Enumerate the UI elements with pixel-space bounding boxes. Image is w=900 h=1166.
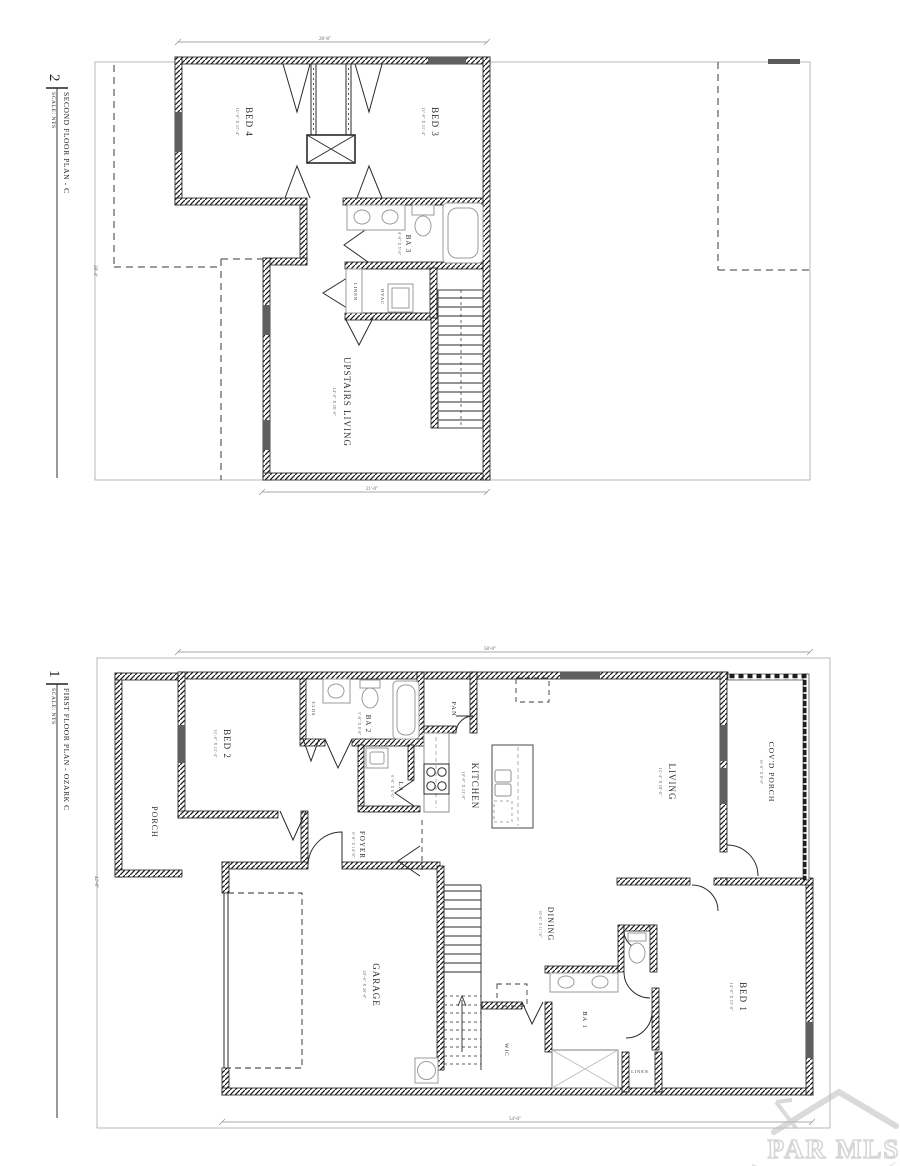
room-size-bed1: 14'-0" X 13'-0" xyxy=(729,983,734,1012)
room-label-clos: CLOS xyxy=(311,702,316,717)
plan2-scale: SCALE: NTS xyxy=(50,92,56,129)
room-label-upstairs-living: UPSTAIRS LIVING xyxy=(342,357,352,447)
plan2-closet-chase xyxy=(307,64,355,163)
room-label-la: LA xyxy=(397,782,404,793)
plan1-dim-bottom: 54'-0" xyxy=(509,1117,521,1122)
room-size-la: 6'-0" X 6'-0" xyxy=(390,775,394,798)
hvac-unit-inner xyxy=(392,288,409,308)
room-size-upstairs-living: 14'-0" X 16'-0" xyxy=(332,388,337,417)
room-label-linen2: LINEN xyxy=(353,283,358,302)
room-size-kitchen: 10'-0" X 11'-0" xyxy=(461,772,466,801)
room-label-wic: WIC xyxy=(503,1043,509,1057)
room-size-ba3: 8'-0" X 5'-0" xyxy=(397,232,401,255)
plan1-dim-top: 58'-0" xyxy=(484,647,496,652)
plan2-ba3-fixtures xyxy=(346,203,483,313)
ba3-toilet-icon xyxy=(415,216,431,236)
front-door xyxy=(308,832,342,866)
plan1-first-floor: 1 FIRST FLOOR PLAN - OZARK C SCALE: NTS … xyxy=(46,647,830,1128)
ba1-fixtures xyxy=(415,933,646,1088)
room-label-ba2: BA 2 xyxy=(364,715,372,734)
ba2-toilet-icon xyxy=(362,688,378,708)
ba1-sink-right-icon xyxy=(592,976,608,988)
plan1-stairs xyxy=(444,885,481,1070)
room-label-ba3: BA 3 xyxy=(404,235,412,254)
ba2-sink-icon xyxy=(328,684,344,698)
room-label-bed2: BED 2 xyxy=(222,729,232,759)
room-label-bed1: BED 1 xyxy=(738,982,748,1012)
plan2-number: 2 xyxy=(46,74,62,82)
room-size-living: 15'-4" X 18'-0" xyxy=(658,768,663,797)
room-label-dining: DINING xyxy=(546,907,555,941)
room-size-bed2: 11'-0" X 11'-4" xyxy=(213,730,218,759)
plan2-title-block: 2 SECOND FLOOR PLAN - C SCALE: NTS xyxy=(46,74,71,478)
plan2-dim-bottom: 21'-0" xyxy=(366,487,378,492)
ba2-toilet-tank-icon xyxy=(360,680,380,688)
plan2-dim-left: 38'-4" xyxy=(92,265,97,277)
ba1-toilet-icon xyxy=(629,943,645,963)
plan2-walls xyxy=(175,57,490,480)
room-label-living: LIVING xyxy=(667,764,677,801)
room-label-foyer: FOYER xyxy=(358,831,366,859)
refrigerator-icon xyxy=(516,678,549,702)
room-label-ba1: BA 1 xyxy=(581,1011,588,1029)
plan2-second-floor: 2 SECOND FLOOR PLAN - C SCALE: NTS 28'-8… xyxy=(46,37,810,495)
mls-watermark: PAR MLS xyxy=(752,1092,900,1166)
room-label-porch: PORCH xyxy=(150,806,159,838)
dishwasher-icon xyxy=(494,801,512,822)
porch-door xyxy=(727,845,758,876)
plan1-title-block: 1 FIRST FLOOR PLAN - OZARK C SCALE: NTS xyxy=(46,670,71,1118)
room-label-bed4: BED 4 xyxy=(244,107,254,137)
plan1-scale: SCALE: NTS xyxy=(50,688,56,725)
room-size-bed4: 11'-0" X 11'-4" xyxy=(235,108,240,137)
room-label-pan: PAN xyxy=(450,701,457,716)
room-label-linen1: LINEN xyxy=(631,1069,649,1074)
bed1-door xyxy=(692,885,718,911)
plan1-dimensions: 58'-0" 54'-0" 42'-8" xyxy=(93,647,815,1125)
island-sink-icon xyxy=(495,770,511,782)
water-heater-icon xyxy=(418,1062,436,1080)
room-size-ba2: 5'-0" X 8'-0" xyxy=(357,712,361,735)
ba3-sink-left-icon xyxy=(354,210,370,224)
plan1-walls xyxy=(115,672,813,1095)
watermark-brand: PAR MLS xyxy=(768,1134,900,1164)
room-size-covd-porch: 16'-0" X 8'-0" xyxy=(759,759,763,784)
ba3-tub-basin-icon xyxy=(448,208,478,258)
plan2-dim-top: 28'-8" xyxy=(319,37,331,42)
room-label-covd-porch: COV'D PORCH xyxy=(767,742,776,803)
plan1-number: 1 xyxy=(46,670,62,678)
room-size-dining: 10'-0" X 11'-0" xyxy=(538,910,542,938)
room-label-garage: GARAGE xyxy=(371,963,381,1007)
room-label-kitchen: KITCHEN xyxy=(470,763,480,810)
plan1-dim-left: 42'-8" xyxy=(93,876,98,888)
room-size-foyer: 6'-0" X 14'-0" xyxy=(351,832,355,857)
ba1-toilet-tank-icon xyxy=(628,933,646,941)
ba1-sink-left-icon xyxy=(558,976,574,988)
plan2-title: SECOND FLOOR PLAN - C xyxy=(62,92,71,194)
stove-icon xyxy=(424,764,449,794)
garage-door xyxy=(224,893,302,1068)
floor-plan-drawing: 2 SECOND FLOOR PLAN - C SCALE: NTS 28'-8… xyxy=(0,0,900,1166)
kitchen-island xyxy=(492,745,533,828)
room-size-garage: 20'-0" X 20'-0" xyxy=(362,971,367,1000)
ba3-toilet-tank-icon xyxy=(412,205,434,215)
plan2-stairs xyxy=(438,290,483,428)
ba3-sink-right-icon xyxy=(382,210,398,224)
plan1-room-labels: PORCH BED 2 11'-0" X 11'-4" CLOS BA 2 5'… xyxy=(150,701,776,1074)
plan1-title: FIRST FLOOR PLAN - OZARK C xyxy=(62,688,71,811)
plan1-doors xyxy=(280,716,758,1038)
room-size-bed3: 11'-0" X 11'-4" xyxy=(421,108,426,137)
plan2-footprint xyxy=(95,59,810,480)
room-label-bed3: BED 3 xyxy=(430,107,440,137)
room-label-hvac: HVAC xyxy=(380,289,385,305)
floor-plan-sheet: 2 SECOND FLOOR PLAN - C SCALE: NTS 28'-8… xyxy=(0,0,900,1166)
